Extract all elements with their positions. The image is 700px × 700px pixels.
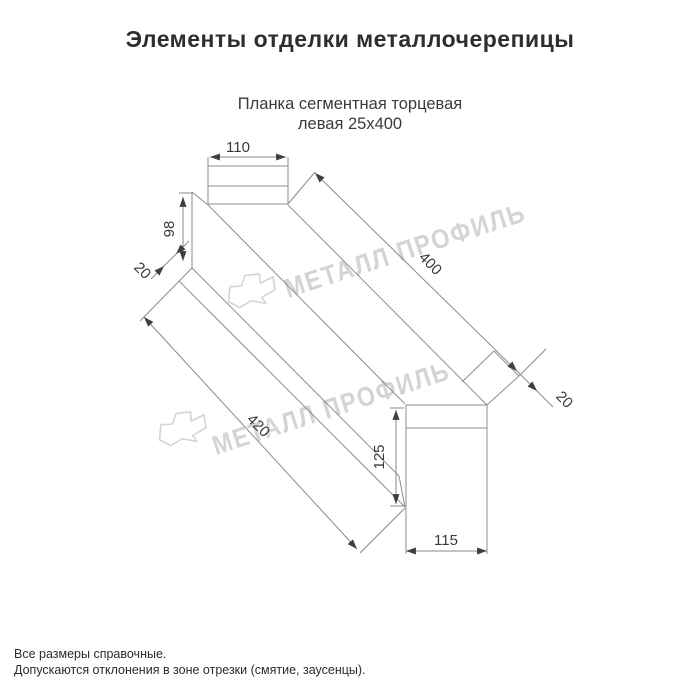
dim-label-20-right: 20 bbox=[552, 388, 576, 412]
watermark-upper: МЕТАЛЛ ПРОФИЛЬ bbox=[222, 197, 529, 314]
dimension-drawing: МЕТАЛЛ ПРОФИЛЬ МЕТАЛЛ ПРОФИЛЬ bbox=[0, 0, 700, 700]
dim-98: 98 bbox=[161, 193, 192, 261]
dim-label-98: 98 bbox=[161, 221, 178, 238]
dim-label-115: 115 bbox=[434, 532, 458, 549]
watermark-lower: МЕТАЛЛ ПРОФИЛЬ bbox=[153, 356, 453, 461]
dim-label-125: 125 bbox=[371, 444, 388, 469]
watermark-text-upper: МЕТАЛЛ ПРОФИЛЬ bbox=[281, 197, 530, 303]
dim-115: 115 bbox=[406, 532, 487, 551]
footnote-line1: Все размеры справочные. bbox=[14, 646, 366, 662]
dim-110: 110 bbox=[210, 139, 286, 157]
technical-drawing-page: Элементы отделки металлочерепицы Планка … bbox=[0, 0, 700, 700]
dim-label-110: 110 bbox=[226, 139, 250, 156]
footnote-line2: Допускаются отклонения в зоне отрезки (с… bbox=[14, 662, 366, 678]
dim-125: 125 bbox=[371, 408, 404, 506]
footnotes: Все размеры справочные. Допускаются откл… bbox=[14, 646, 366, 678]
dim-20-right: 20 bbox=[517, 349, 576, 412]
metal-profil-logo-icon bbox=[153, 405, 211, 452]
dim-label-20-left: 20 bbox=[130, 259, 154, 283]
dim-20-left: 20 bbox=[130, 241, 189, 283]
